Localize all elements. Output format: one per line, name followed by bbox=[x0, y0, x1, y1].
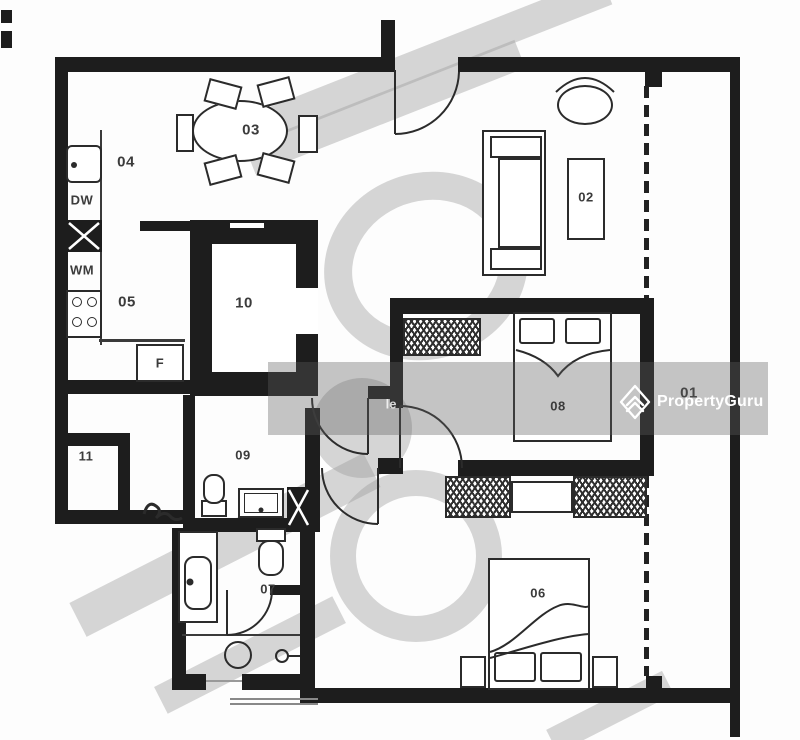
room-label-bath-middle: 09 bbox=[235, 448, 250, 463]
door-scribble-icon bbox=[144, 504, 182, 519]
room-label-bedroom-lower: 06 bbox=[530, 586, 545, 601]
faucet-icon bbox=[276, 650, 288, 662]
room-label-dining: 03 bbox=[242, 122, 260, 139]
room-label-bedroom-middle: 08 bbox=[550, 399, 565, 414]
appliance-label-dishwasher: DW bbox=[71, 193, 94, 208]
propertyguru-watermark: PropertyGuru bbox=[618, 382, 788, 422]
door-swing-icon bbox=[322, 468, 378, 524]
room-label-living: 02 bbox=[578, 190, 593, 205]
room-label-bath-lower: 07 bbox=[260, 582, 275, 597]
door-swing-icon bbox=[227, 590, 272, 635]
shaft-x-icon bbox=[289, 490, 308, 525]
tub-faucet-icon bbox=[187, 579, 194, 586]
propertyguru-brand-text: PropertyGuru bbox=[657, 393, 763, 411]
room-label-store: 11 bbox=[79, 449, 94, 464]
floor-plan-canvas: 01 02 03 04 05 06 07 08 09 10 11 DW WM F… bbox=[0, 0, 800, 740]
shaft-x-icon bbox=[69, 223, 99, 249]
room-label-kitchen-upper: 04 bbox=[117, 154, 135, 171]
basin-icon bbox=[225, 642, 251, 668]
appliance-label-fridge: F bbox=[156, 356, 164, 371]
room-label-shelter: 10 bbox=[235, 295, 253, 312]
watermark-partial-text: le bbox=[386, 397, 397, 412]
entrance-door-swing-icon bbox=[395, 72, 459, 134]
vanity-drain-icon bbox=[259, 508, 264, 513]
table-arc-icon bbox=[556, 78, 614, 92]
appliance-label-washer: WM bbox=[70, 263, 94, 278]
sink-drain-icon bbox=[71, 162, 77, 168]
propertyguru-logo-icon bbox=[618, 383, 652, 421]
blanket-fold-icon bbox=[490, 604, 589, 658]
room-label-kitchen-lower: 05 bbox=[118, 294, 136, 311]
